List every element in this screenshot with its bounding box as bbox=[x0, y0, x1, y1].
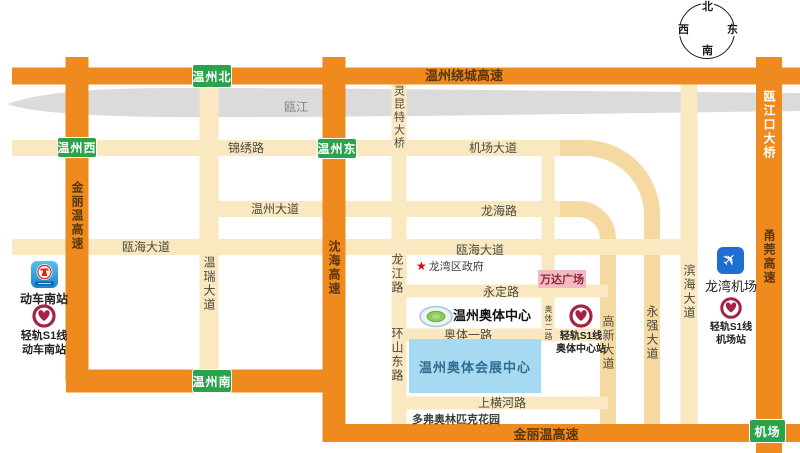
s1-aoti-line-label: 轻轨S1线 bbox=[560, 332, 602, 342]
highway-jinliwen-west-label: 金丽温高速 bbox=[71, 181, 83, 251]
road-aoti-2-label: 奥体二路 bbox=[544, 305, 552, 341]
road-shanghenghe-label: 上横河路 bbox=[478, 397, 526, 409]
china-railway-app-icon bbox=[31, 261, 58, 288]
s1-south-station-label: 动车南站 bbox=[22, 345, 66, 356]
s1-metro-logo-aoti bbox=[568, 303, 594, 329]
compass-east-label: 东 bbox=[726, 25, 739, 36]
bridge-oujiangkou-label: 瓯江口大桥 bbox=[763, 90, 775, 160]
road-binhai-avenue-label: 滨海大道 bbox=[683, 264, 695, 320]
road-ouhai-east-label: 瓯海大道 bbox=[456, 244, 504, 256]
road-gaoxin-avenue-label: 高新大道 bbox=[602, 315, 614, 371]
highway-yongguan-label: 甬莞高速 bbox=[763, 229, 775, 285]
expo-center-block: 温州奥体会展中心 bbox=[409, 339, 541, 393]
compass-west-label: 西 bbox=[677, 25, 690, 36]
highway-raocheng-label: 温州绕城高速 bbox=[425, 69, 503, 82]
compass-north-label: 北 bbox=[701, 2, 714, 13]
road-wenzhou-avenue-label: 温州大道 bbox=[251, 203, 299, 215]
aoti-center-label: 温州奥体中心 bbox=[453, 309, 531, 322]
s1-airport-station-label: 机场站 bbox=[716, 336, 746, 346]
highway-shenhai-label: 沈海高速 bbox=[328, 240, 340, 296]
star-icon: ★ bbox=[416, 259, 427, 273]
stadium-icon bbox=[419, 305, 453, 328]
road-yongding-label: 永定路 bbox=[483, 286, 519, 298]
exit-badge-wenzhou-west: 温州西 bbox=[57, 137, 97, 158]
compass-south-label: 南 bbox=[701, 46, 714, 57]
road-yongqiang-avenue-label: 永强大道 bbox=[646, 305, 658, 361]
wanda-plaza-label: 万达广场 bbox=[538, 270, 586, 288]
exit-badge-airport: 机场 bbox=[749, 419, 786, 443]
exit-badge-wenzhou-north: 温州北 bbox=[192, 64, 232, 88]
road-longjiang-label: 龙江路 bbox=[391, 253, 403, 295]
exit-badge-wenzhou-south: 温州南 bbox=[192, 369, 232, 393]
wenzhou-transit-map: 北 西 东 南 瓯江 温州绕城高速 金丽温高速 沈海高速 瓯江口大桥 甬莞高速 … bbox=[0, 0, 800, 453]
road-ouhai-west-label: 瓯海大道 bbox=[122, 241, 170, 253]
s1-south-line-label: 轻轨S1线 bbox=[21, 331, 67, 342]
road-longhai-label: 龙海路 bbox=[481, 205, 517, 217]
bridge-lingkun-label: 灵昆特大桥 bbox=[393, 85, 404, 150]
s1-airport-line-label: 轻轨S1线 bbox=[710, 323, 752, 333]
exit-badge-wenzhou-east: 温州东 bbox=[317, 138, 357, 159]
highway-jinliwen-south-label: 金丽温高速 bbox=[513, 428, 578, 441]
road-jinxiu-label: 锦绣路 bbox=[228, 142, 264, 154]
longwan-gov-label: 龙湾区政府 bbox=[429, 261, 484, 273]
s1-metro-logo-airport bbox=[719, 296, 743, 320]
road-wenrui-avenue-label: 温瑞大道 bbox=[203, 256, 215, 312]
s1-metro-logo-south bbox=[31, 303, 57, 329]
road-huanshandong-label: 环山东路 bbox=[391, 327, 403, 383]
river-label: 瓯江 bbox=[284, 101, 308, 113]
longwan-gov-landmark: ★龙湾区政府 bbox=[416, 258, 484, 274]
airport-icon: ✈ bbox=[717, 247, 744, 274]
duofu-garden-label: 多弗奥林匹克花园 bbox=[412, 415, 500, 426]
road-jichang-avenue-label: 机场大道 bbox=[469, 142, 517, 154]
s1-aoti-station-label: 奥体中心站 bbox=[556, 345, 606, 355]
longwan-airport-label: 龙湾机场 bbox=[705, 280, 757, 293]
map-road-layer bbox=[0, 0, 800, 453]
